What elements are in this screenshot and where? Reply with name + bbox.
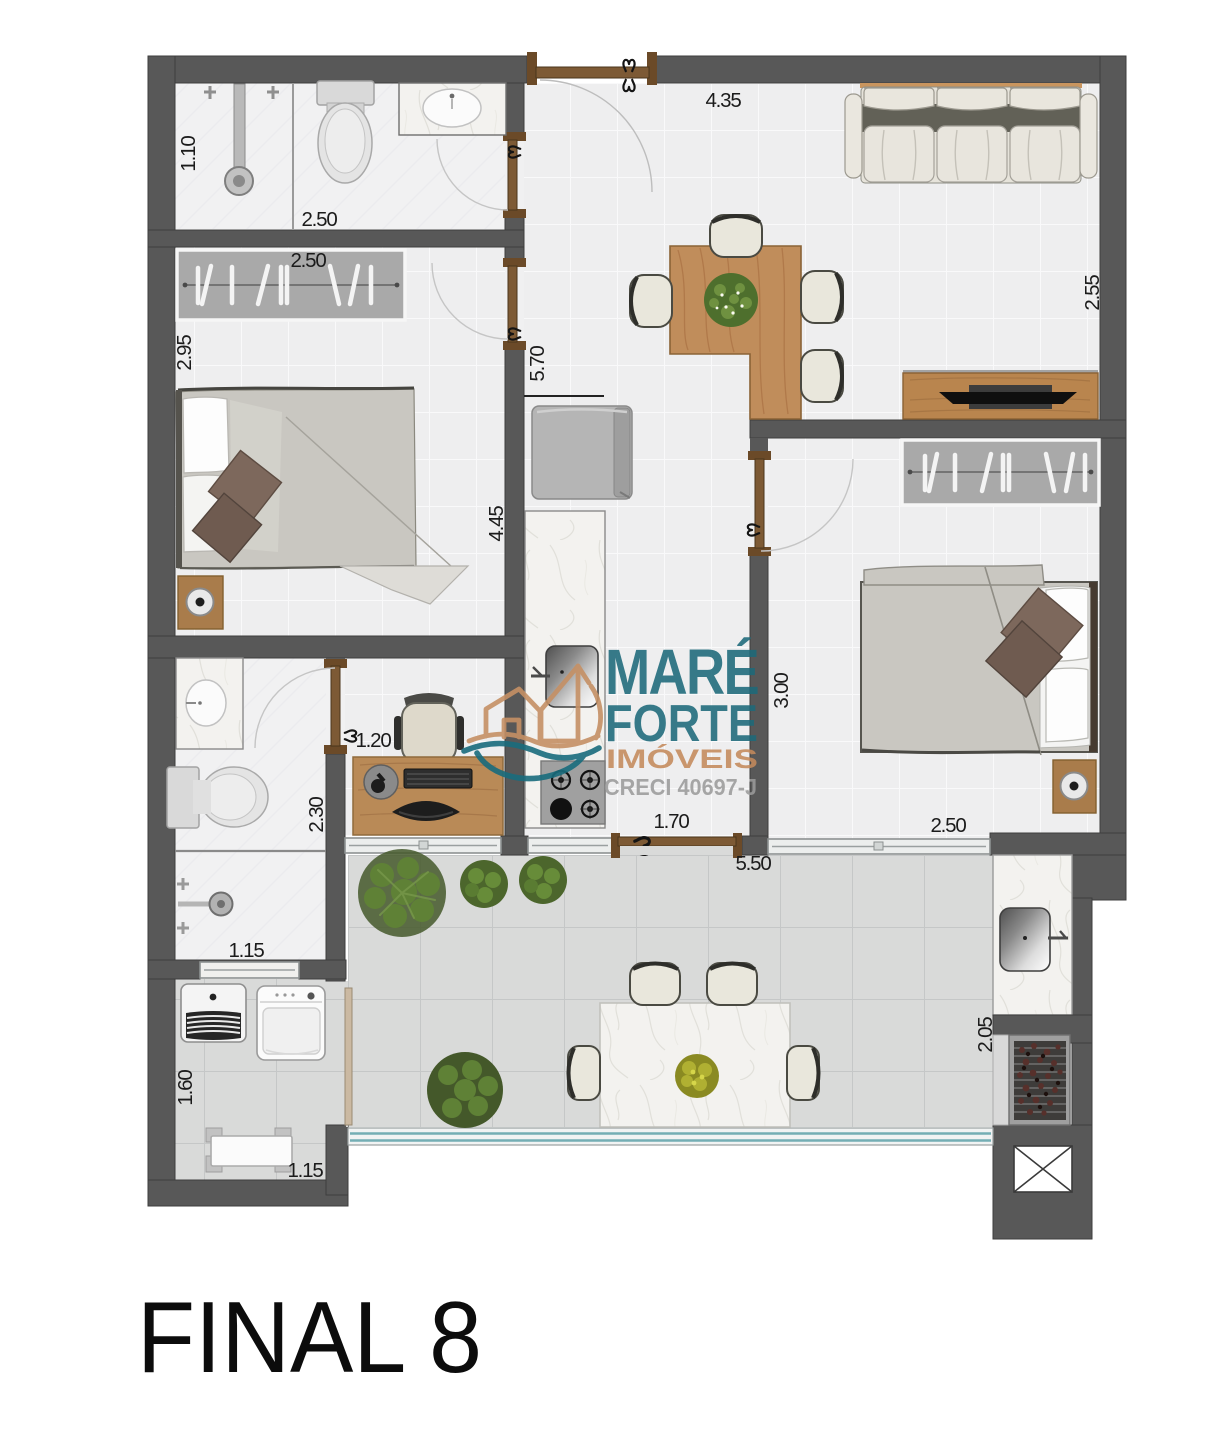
svg-text:1.15: 1.15 — [287, 1159, 323, 1182]
svg-text:4.35: 4.35 — [705, 89, 741, 112]
svg-text:1.20: 1.20 — [355, 729, 391, 752]
svg-text:1.60: 1.60 — [174, 1070, 197, 1106]
svg-text:2.55: 2.55 — [1081, 275, 1104, 311]
svg-text:2.30: 2.30 — [305, 797, 328, 833]
svg-text:2.95: 2.95 — [173, 335, 196, 371]
svg-text:2.50: 2.50 — [930, 814, 966, 837]
svg-text:5.50: 5.50 — [735, 852, 771, 875]
svg-text:2.50: 2.50 — [301, 208, 337, 231]
svg-text:2.50: 2.50 — [290, 249, 326, 272]
svg-text:2.05: 2.05 — [974, 1017, 997, 1053]
svg-text:3.00: 3.00 — [770, 673, 793, 709]
svg-text:5.70: 5.70 — [526, 346, 549, 382]
svg-text:1.10: 1.10 — [177, 136, 200, 172]
svg-text:IMÓVEIS: IMÓVEIS — [606, 743, 758, 774]
svg-text:1.70: 1.70 — [653, 810, 689, 833]
svg-text:4.45: 4.45 — [485, 506, 508, 542]
svg-text:CRECI 40697-J: CRECI 40697-J — [604, 774, 757, 800]
svg-text:1.15: 1.15 — [228, 939, 264, 962]
svg-text:FINAL 8: FINAL 8 — [137, 1280, 482, 1394]
